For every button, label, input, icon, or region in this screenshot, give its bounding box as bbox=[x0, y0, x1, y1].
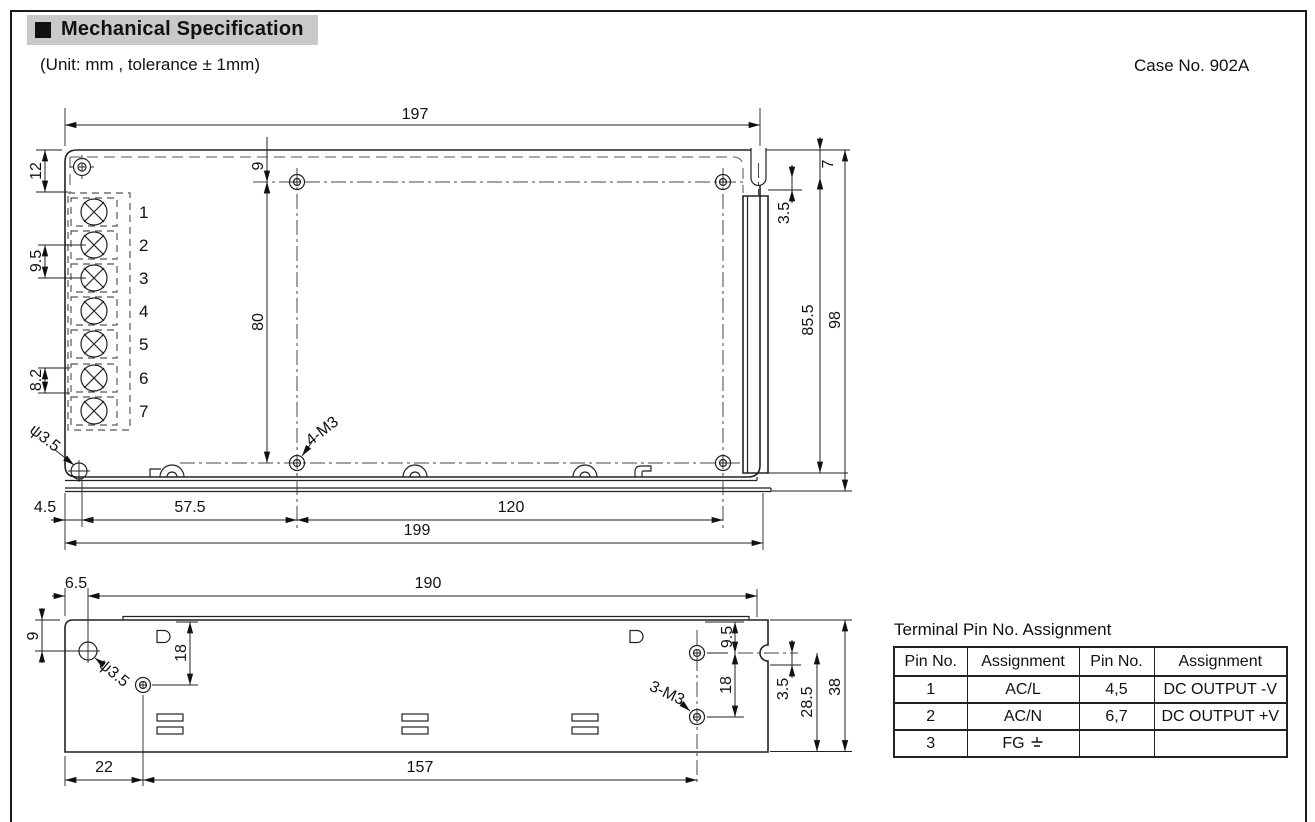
edge-slot bbox=[635, 466, 651, 477]
svg-text:4.5: 4.5 bbox=[34, 499, 56, 516]
dim-28p5: 28.5 bbox=[799, 653, 817, 752]
cell-pin-45: 4,5 bbox=[1079, 676, 1154, 703]
svg-text:80: 80 bbox=[250, 313, 267, 331]
dim-9-top: 9 bbox=[250, 137, 267, 195]
terminal-block: 1 2 3 4 5 6 7 bbox=[68, 193, 148, 430]
edge-tab-3 bbox=[573, 465, 597, 477]
header-pin-no-1: Pin No. bbox=[894, 647, 967, 676]
top-slot-right bbox=[630, 631, 643, 643]
cell-pin-67: 6,7 bbox=[1079, 703, 1154, 730]
dim-120: 120 bbox=[297, 499, 723, 520]
terminal-5 bbox=[71, 330, 117, 358]
side-flange bbox=[743, 196, 768, 473]
terminal-pin-table: Terminal Pin No. Assignment Pin No. Assi… bbox=[893, 620, 1293, 758]
svg-text:3-M3: 3-M3 bbox=[647, 678, 687, 709]
terminal-7-number: 7 bbox=[139, 402, 148, 421]
terminal-4 bbox=[71, 297, 117, 325]
dim-197: 197 bbox=[65, 106, 760, 125]
top-view: 1 2 3 4 5 6 7 197 12 9.5 8.2 bbox=[26, 106, 852, 550]
pin-table-header-row: Pin No. Assignment Pin No. Assignment bbox=[894, 647, 1287, 676]
svg-text:197: 197 bbox=[402, 106, 429, 123]
dim-190: 190 bbox=[88, 575, 757, 596]
edge-tab-1 bbox=[150, 465, 184, 477]
dim-6p5: 6.5 bbox=[52, 575, 101, 596]
top-slot-left bbox=[157, 631, 170, 643]
svg-text:9.5: 9.5 bbox=[28, 250, 45, 272]
svg-text:199: 199 bbox=[404, 522, 431, 539]
terminal-2-number: 2 bbox=[139, 236, 148, 255]
cell-assign-empty bbox=[1154, 730, 1287, 757]
svg-text:57.5: 57.5 bbox=[174, 499, 205, 516]
cell-assign-67: DC OUTPUT +V bbox=[1154, 703, 1287, 730]
cell-pin-empty bbox=[1079, 730, 1154, 757]
terminal-5-number: 5 bbox=[139, 335, 148, 354]
svg-text:ψ3.5: ψ3.5 bbox=[26, 421, 63, 455]
cell-assign-3: FG bbox=[967, 730, 1079, 757]
terminal-6 bbox=[71, 364, 117, 392]
cell-pin-3: 3 bbox=[894, 730, 967, 757]
header-pin-no-2: Pin No. bbox=[1079, 647, 1154, 676]
dim-18-right: 18 bbox=[718, 653, 735, 717]
terminal-1-number: 1 bbox=[139, 203, 148, 222]
svg-text:18: 18 bbox=[173, 644, 190, 662]
header-assignment-2: Assignment bbox=[1154, 647, 1287, 676]
dim-12: 12 bbox=[28, 150, 45, 192]
svg-text:9: 9 bbox=[250, 161, 267, 170]
bottom-lip bbox=[65, 477, 771, 492]
dim-9p5-right: 9.5 bbox=[719, 622, 736, 653]
svg-text:157: 157 bbox=[407, 759, 434, 776]
pin-table-row-1: 1 AC/L 4,5 DC OUTPUT -V bbox=[894, 676, 1287, 703]
svg-text:190: 190 bbox=[415, 575, 442, 592]
svg-text:8.2: 8.2 bbox=[28, 369, 45, 391]
dim-38: 38 bbox=[827, 620, 845, 752]
svg-text:38: 38 bbox=[827, 678, 844, 696]
cell-assign-2: AC/N bbox=[967, 703, 1079, 730]
dim-157: 157 bbox=[143, 759, 697, 780]
dim-9p5: 9.5 bbox=[28, 245, 86, 278]
dim-7: 7 bbox=[820, 137, 837, 191]
side-screw-hole-left bbox=[136, 678, 151, 693]
dim-9-side: 9 bbox=[25, 608, 42, 663]
cell-pin-1: 1 bbox=[894, 676, 967, 703]
corner-hole bbox=[70, 155, 94, 179]
dim-85p5: 85.5 bbox=[800, 178, 820, 473]
dim-98: 98 bbox=[827, 150, 845, 491]
svg-text:98: 98 bbox=[827, 311, 844, 329]
dim-80: 80 bbox=[250, 182, 267, 463]
dim-57p5: 57.5 bbox=[82, 499, 297, 520]
svg-text:120: 120 bbox=[498, 499, 525, 516]
svg-text:22: 22 bbox=[95, 759, 113, 776]
vent-slots bbox=[157, 714, 598, 734]
label-4m3: 4-M3 bbox=[302, 413, 342, 456]
side-view: 6.5 190 9 18 ψ3.5 3-M3 22 bbox=[25, 575, 852, 786]
svg-text:6.5: 6.5 bbox=[65, 575, 87, 592]
cell-pin-2: 2 bbox=[894, 703, 967, 730]
cover-edge-dashed bbox=[70, 157, 743, 193]
header-assignment-1: Assignment bbox=[967, 647, 1079, 676]
svg-text:28.5: 28.5 bbox=[799, 686, 816, 717]
svg-text:4-M3: 4-M3 bbox=[303, 413, 342, 449]
dim-8p2: 8.2 bbox=[28, 368, 70, 393]
edge-tab-2 bbox=[403, 465, 427, 477]
terminal-7 bbox=[71, 397, 117, 425]
svg-text:3.5: 3.5 bbox=[776, 202, 793, 224]
pin-table-row-3: 3 FG bbox=[894, 730, 1287, 757]
dim-3p5-top: 3.5 bbox=[776, 165, 793, 224]
terminal-3-number: 3 bbox=[139, 269, 148, 288]
earth-ground-icon bbox=[1030, 737, 1044, 749]
svg-text:12: 12 bbox=[28, 162, 45, 180]
svg-text:ψ3.5: ψ3.5 bbox=[95, 656, 132, 691]
pin-table-title: Terminal Pin No. Assignment bbox=[894, 620, 1293, 640]
label-3m3: 3-M3 bbox=[647, 678, 690, 711]
terminal-1 bbox=[71, 198, 117, 226]
fg-label: FG bbox=[1002, 735, 1024, 752]
pin-table-row-2: 2 AC/N 6,7 DC OUTPUT +V bbox=[894, 703, 1287, 730]
cell-assign-1: AC/L bbox=[967, 676, 1079, 703]
dim-3p5-side: 3.5 bbox=[775, 640, 792, 700]
dim-18-left: 18 bbox=[173, 622, 190, 685]
cell-assign-45: DC OUTPUT -V bbox=[1154, 676, 1287, 703]
label-psi35-top: ψ3.5 bbox=[26, 421, 74, 465]
label-psi35-side: ψ3.5 bbox=[95, 656, 132, 691]
terminal-6-number: 6 bbox=[139, 369, 148, 388]
svg-text:3.5: 3.5 bbox=[775, 678, 792, 700]
svg-text:9.5: 9.5 bbox=[719, 626, 736, 648]
svg-text:7: 7 bbox=[820, 159, 837, 168]
dim-22: 22 bbox=[65, 759, 143, 780]
terminal-4-number: 4 bbox=[139, 302, 148, 321]
svg-text:85.5: 85.5 bbox=[800, 304, 817, 335]
svg-text:18: 18 bbox=[718, 676, 735, 694]
dim-199: 199 bbox=[65, 522, 763, 543]
svg-text:9: 9 bbox=[25, 631, 42, 640]
top-view-outline bbox=[65, 150, 760, 477]
